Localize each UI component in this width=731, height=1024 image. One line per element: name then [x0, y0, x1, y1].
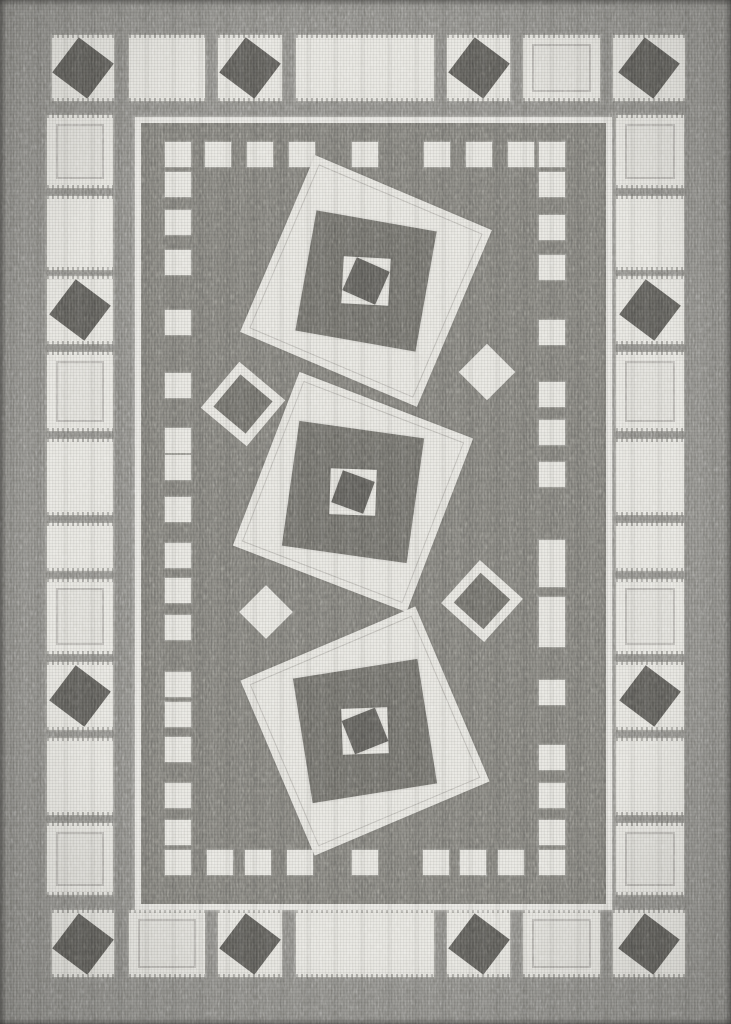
dot-square — [165, 210, 191, 235]
dot-square — [165, 455, 191, 480]
band-square-inner-outline — [56, 361, 104, 422]
band-square — [47, 738, 113, 815]
band-square — [616, 439, 684, 515]
band-square-inner-outline — [532, 919, 591, 968]
band-square — [296, 35, 434, 101]
dot-square — [539, 255, 565, 280]
band-square-inner-outline — [625, 832, 675, 886]
band-dark-diamond — [618, 37, 680, 99]
band-square — [616, 276, 684, 344]
edge-binding-top — [0, 0, 731, 6]
dot-square — [165, 850, 191, 875]
dot-square — [245, 850, 271, 875]
band-square — [523, 910, 600, 977]
band-square — [47, 352, 113, 431]
dot-square — [423, 850, 449, 875]
dot-square — [539, 142, 565, 167]
band-square — [447, 910, 510, 977]
band-square-inner-outline — [56, 588, 104, 645]
dot-square — [352, 850, 378, 875]
band-square — [296, 910, 434, 977]
dot-square — [424, 142, 450, 167]
band-square — [47, 276, 113, 344]
dot-square — [247, 142, 273, 167]
dot-square — [539, 320, 565, 345]
dot-square — [165, 615, 191, 640]
dot-square — [539, 420, 565, 445]
band-square — [129, 35, 205, 101]
rug-photo — [0, 0, 731, 1024]
dot-square — [539, 850, 565, 875]
band-square — [616, 196, 684, 270]
band-square — [447, 35, 510, 101]
dot-square — [205, 142, 231, 167]
dot-square — [165, 142, 191, 167]
dot-square — [165, 497, 191, 522]
dot-square — [539, 382, 565, 407]
dot-square — [539, 462, 565, 487]
dot-square — [466, 142, 492, 167]
dot-square — [165, 737, 191, 762]
band-dark-diamond — [49, 665, 111, 727]
dot-square — [165, 310, 191, 335]
edge-binding-right — [724, 0, 731, 1024]
band-square-inner-outline — [625, 124, 675, 179]
band-square — [47, 823, 113, 895]
band-square-inner-outline — [532, 44, 591, 92]
dot-square — [508, 142, 534, 167]
dot-square — [539, 622, 565, 647]
band-square — [47, 115, 113, 188]
dot-square — [165, 672, 191, 697]
edge-binding-left — [0, 0, 7, 1024]
band-square — [616, 115, 684, 188]
band-square — [47, 196, 113, 270]
band-dark-diamond — [219, 913, 281, 975]
dot-square — [539, 215, 565, 240]
band-square-inner-outline — [56, 832, 104, 886]
band-square — [616, 352, 684, 431]
band-dark-diamond — [219, 37, 281, 99]
dot-square — [539, 783, 565, 808]
band-square — [616, 523, 684, 571]
band-square — [47, 439, 113, 515]
dot-square — [539, 820, 565, 845]
band-square — [616, 579, 684, 654]
dot-square — [165, 250, 191, 275]
dot-square — [165, 373, 191, 398]
band-square — [47, 523, 113, 571]
dot-square — [165, 820, 191, 845]
dot-square — [165, 428, 191, 453]
rug — [0, 0, 731, 1024]
band-square — [613, 910, 685, 977]
dot-square — [539, 597, 565, 622]
dot-square — [460, 850, 486, 875]
band-square — [218, 35, 282, 101]
band-square — [218, 910, 282, 977]
band-square — [523, 35, 600, 101]
dot-square — [287, 850, 313, 875]
dot-square — [165, 172, 191, 197]
band-dark-diamond — [619, 665, 681, 727]
band-square — [613, 35, 685, 101]
band-square — [52, 35, 114, 101]
band-square — [616, 738, 684, 815]
band-square-inner-outline — [138, 919, 196, 968]
edge-binding-bottom — [0, 1018, 731, 1024]
band-dark-diamond — [52, 913, 114, 975]
band-dark-diamond — [619, 279, 681, 341]
band-dark-diamond — [448, 37, 510, 99]
band-square-inner-outline — [625, 361, 675, 422]
dot-square — [165, 543, 191, 568]
band-square — [47, 579, 113, 654]
dot-square — [539, 745, 565, 770]
dot-square — [352, 142, 378, 167]
dot-square — [165, 578, 191, 603]
dot-square — [498, 850, 524, 875]
band-dark-diamond — [52, 37, 114, 99]
band-dark-diamond — [49, 279, 111, 341]
band-square-inner-outline — [625, 588, 675, 645]
band-square-inner-outline — [56, 124, 104, 179]
band-square — [47, 662, 113, 730]
dot-square — [539, 562, 565, 587]
dot-square — [207, 850, 233, 875]
dot-square — [165, 783, 191, 808]
dot-square — [539, 680, 565, 705]
dot-square — [165, 702, 191, 727]
band-square — [616, 662, 684, 730]
band-square — [616, 823, 684, 895]
band-square — [52, 910, 114, 977]
band-dark-diamond — [618, 913, 680, 975]
dot-square — [539, 172, 565, 197]
band-square — [129, 910, 205, 977]
band-dark-diamond — [448, 913, 510, 975]
